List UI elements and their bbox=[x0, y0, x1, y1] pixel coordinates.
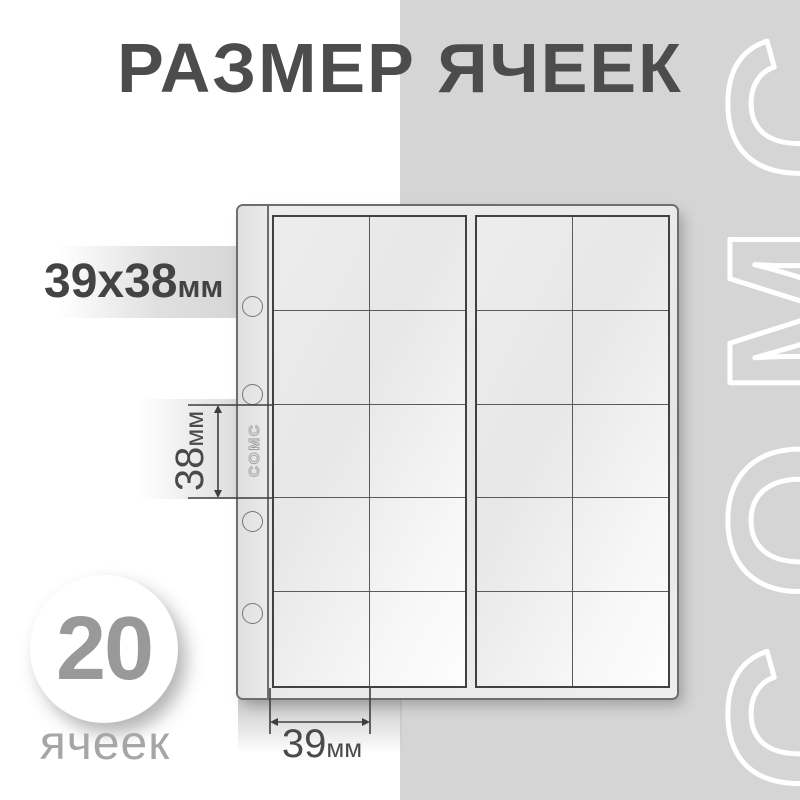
strip-brand-mark: COMC bbox=[238, 206, 267, 698]
pocket-cell bbox=[477, 217, 573, 311]
cell-count-badge: 20 bbox=[30, 575, 178, 723]
pocket-cell bbox=[573, 311, 669, 405]
pocket-cell bbox=[370, 498, 466, 592]
pocket-cell bbox=[274, 498, 370, 592]
cell-size-unit: мм bbox=[177, 269, 223, 304]
pocket-cell bbox=[573, 498, 669, 592]
pocket-cell bbox=[370, 592, 466, 686]
pocket-cell bbox=[370, 311, 466, 405]
pocket-cell bbox=[370, 217, 466, 311]
pocket-cell bbox=[274, 405, 370, 499]
pocket-cell bbox=[477, 498, 573, 592]
binder-strip: COMC bbox=[238, 206, 269, 698]
cell-size-value: 39х38 bbox=[44, 255, 177, 308]
width-unit: мм bbox=[326, 733, 362, 763]
height-dimension-label: 38мм bbox=[168, 381, 212, 521]
pocket-cell bbox=[573, 405, 669, 499]
pocket-cell bbox=[274, 592, 370, 686]
height-value: 38 bbox=[168, 447, 212, 492]
pocket-cell bbox=[370, 405, 466, 499]
page-title: РАЗМЕР ЯЧЕЕК bbox=[0, 28, 800, 108]
pocket-block-left bbox=[272, 215, 467, 688]
width-value: 39 bbox=[282, 722, 327, 766]
width-dimension-label: 39мм bbox=[252, 724, 392, 764]
pocket-cell bbox=[573, 217, 669, 311]
album-sheet: COMC bbox=[238, 206, 677, 698]
cell-size-label: 39х38мм bbox=[44, 252, 238, 317]
pocket-cell bbox=[573, 592, 669, 686]
pocket-block-right bbox=[475, 215, 670, 688]
height-unit: мм bbox=[179, 411, 209, 447]
cell-count-label: ячеек bbox=[20, 716, 190, 771]
strip-brand-text: COMC bbox=[246, 423, 263, 477]
pocket-cell bbox=[477, 592, 573, 686]
cell-count-number: 20 bbox=[56, 598, 152, 701]
pocket-cell bbox=[274, 217, 370, 311]
pocket-cell bbox=[477, 405, 573, 499]
pocket-cell bbox=[274, 311, 370, 405]
pocket-cell bbox=[477, 311, 573, 405]
